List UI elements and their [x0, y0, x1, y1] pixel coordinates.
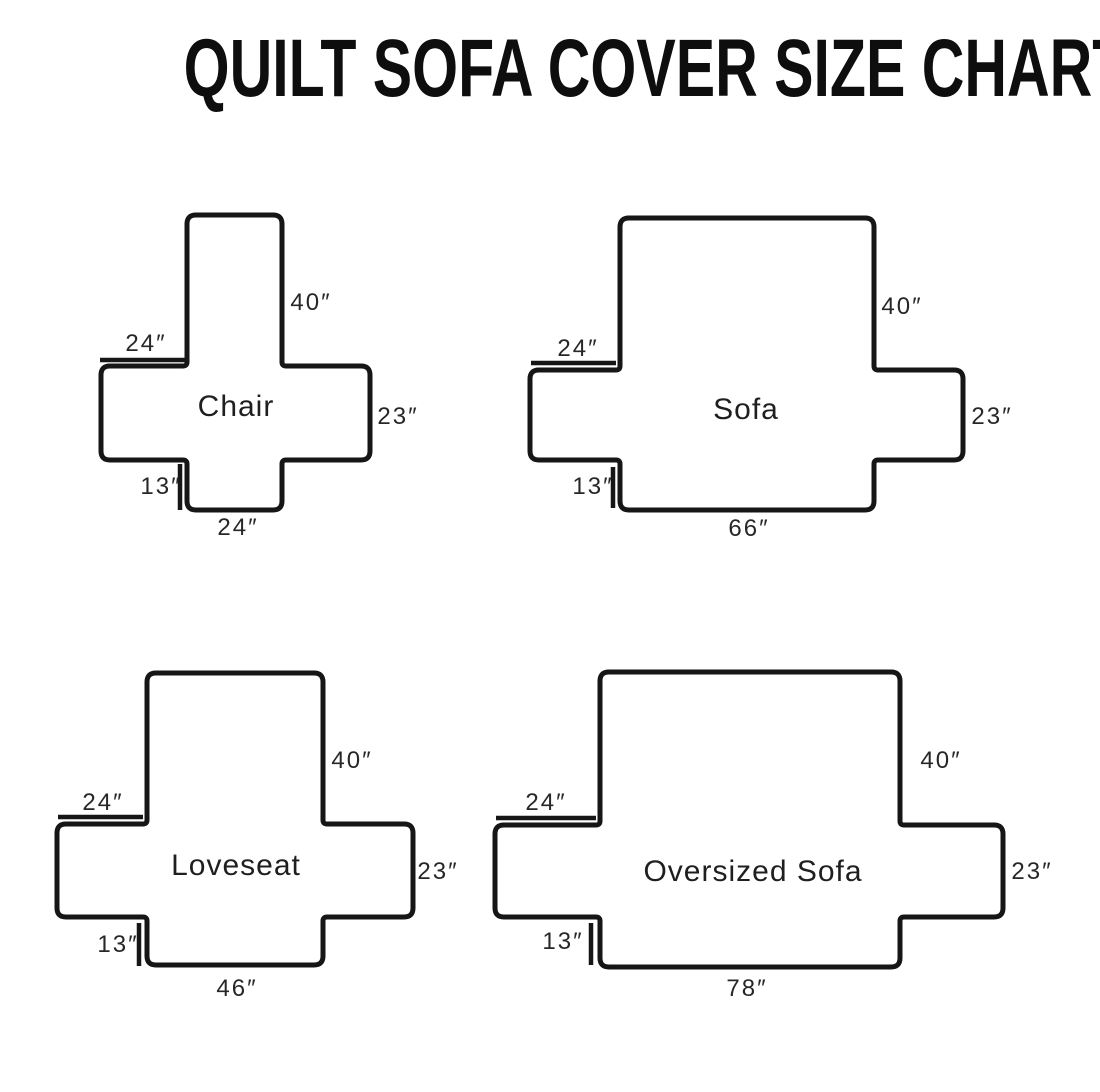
loveseat-side-height-label: 23″ [417, 858, 458, 886]
chair-back-height-label: 40″ [290, 289, 331, 317]
chair-side-height-label: 23″ [377, 403, 418, 431]
oversized-sofa-base-width-label: 78″ [726, 975, 767, 1003]
loveseat-name-label: Loveseat [171, 849, 301, 883]
oversized-sofa-arm-width-label: 24″ [525, 789, 566, 817]
chair-shape [100, 215, 370, 510]
sofa-arm-width-label: 24″ [557, 335, 598, 363]
loveseat-base-width-label: 46″ [216, 975, 257, 1003]
chair-arm-width-label: 24″ [125, 330, 166, 358]
chair-base-width-label: 24″ [217, 514, 258, 542]
oversized-sofa-skirt-drop-label: 13″ [542, 928, 583, 956]
loveseat-skirt-drop-label: 13″ [97, 931, 138, 959]
sofa-side-height-label: 23″ [971, 403, 1012, 431]
oversized-sofa-side-height-label: 23″ [1011, 858, 1052, 886]
sofa-shape [530, 218, 963, 510]
oversized-sofa-back-height-label: 40″ [920, 747, 961, 775]
chair-name-label: Chair [198, 390, 275, 424]
sofa-name-label: Sofa [713, 393, 779, 427]
loveseat-arm-width-label: 24″ [82, 789, 123, 817]
sofa-skirt-drop-label: 13″ [572, 473, 613, 501]
loveseat-back-height-label: 40″ [331, 747, 372, 775]
loveseat-shape [57, 673, 413, 966]
sofa-back-height-label: 40″ [881, 293, 922, 321]
cover-outline [101, 215, 370, 510]
oversized-sofa-name-label: Oversized Sofa [643, 855, 862, 889]
chair-skirt-drop-label: 13″ [140, 473, 181, 501]
oversized-sofa-shape [495, 672, 1003, 967]
sofa-base-width-label: 66″ [728, 515, 769, 543]
